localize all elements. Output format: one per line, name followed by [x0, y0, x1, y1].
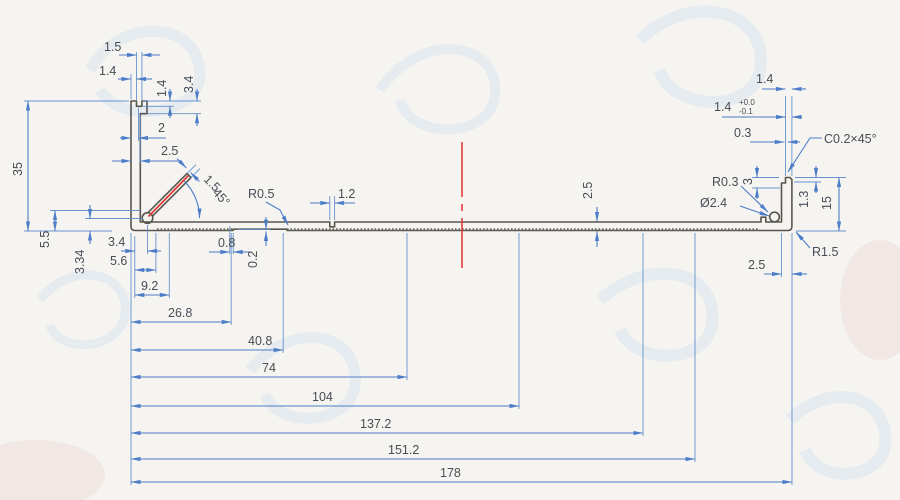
dim-label-74: 74 [262, 361, 276, 375]
dim-label-boss-height: 5.5 [38, 231, 52, 248]
dim-label-26-8: 26.8 [168, 306, 192, 320]
dim-label-right-wall-thickness: 2.5 [748, 258, 765, 272]
dim-label-step-width: 0.8 [218, 236, 235, 250]
dim-label-base-step1: 5.6 [110, 254, 127, 268]
dim-label-104: 104 [312, 390, 333, 404]
dim-label-right-offset: 0.3 [734, 126, 751, 140]
dim-label-boss-offset: 3.4 [108, 235, 125, 249]
dim-label-slot-width: 1.2 [338, 187, 355, 201]
dim-label-fillet-r03: R0.3 [712, 175, 738, 189]
dim-label-lip-to-notch: 2 [158, 121, 165, 135]
dim-label-boss-dia: Ø2.4 [700, 196, 727, 210]
dim-label-right-tip-width: 1.4 [756, 72, 773, 86]
dim-label-base-thickness: 2.5 [581, 182, 595, 199]
dim-label-right-lip: 1.3 [797, 191, 811, 208]
dim-label-wall-thickness: 2.5 [161, 144, 178, 158]
dim-label-right-tip-width-tol: 1.4 [714, 100, 731, 114]
dim-label-40-8: 40.8 [248, 334, 272, 348]
dimension-lines [28, 55, 839, 482]
dim-label-151-2: 151.2 [388, 443, 419, 457]
technical-drawing: 1.5 1.4 1.4 3.4 2 2.5 35 5.5 3.34 3.4 5.… [0, 0, 900, 500]
dim-label-step-height: 0.2 [246, 251, 260, 268]
right-screw-boss [770, 212, 780, 222]
dim-label-fillet-r15: R1.5 [812, 245, 838, 259]
dim-label-137-2: 137.2 [360, 417, 391, 431]
fin-red-stripe [149, 176, 189, 217]
dim-label-178: 178 [440, 466, 461, 480]
dim-label-boss-center-height: 3.34 [73, 250, 87, 274]
dim-label-left-height: 35 [11, 162, 25, 176]
dim-label-right-step: 3 [741, 178, 755, 185]
dim-label-tol-plus: +0.0 [739, 98, 755, 107]
dim-label-fillet-r05: R0.5 [248, 187, 274, 201]
dim-label-base-step2: 9.2 [141, 279, 158, 293]
dim-label-notch-depth: 1.4 [155, 80, 169, 97]
dim-label-top-lip: 1.4 [99, 64, 116, 78]
dim-label-tol-minus: -0.1 [739, 107, 753, 116]
dim-label-chamfer: C0.2×45° [824, 132, 877, 146]
dim-label-notch-width: 1.5 [104, 40, 121, 54]
dim-label-head-depth: 3.4 [182, 76, 196, 93]
dim-label-right-height: 15 [820, 196, 834, 210]
